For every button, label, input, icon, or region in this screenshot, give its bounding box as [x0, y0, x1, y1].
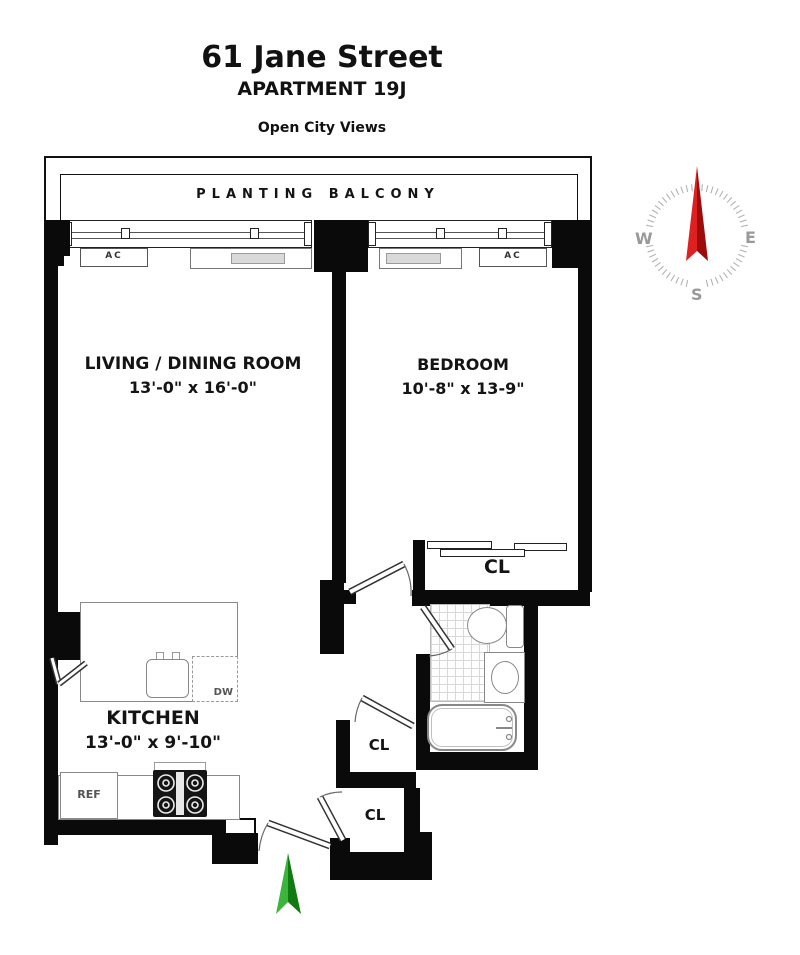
bedroom-dims: 10'-8" x 13-9"	[383, 379, 543, 399]
living-room-dims: 13'-0" x 16'-0"	[63, 378, 323, 398]
closet-hall-label: CL	[354, 736, 404, 755]
ac-label: AC	[480, 251, 546, 261]
wall-window-pier	[314, 220, 368, 272]
wall-living-bedroom	[332, 266, 346, 583]
window-mullion	[498, 228, 507, 239]
radiator-living	[190, 248, 312, 269]
entry-closet-door	[320, 792, 343, 840]
floor-plan: 61 Jane Street APARTMENT 19J Open City V…	[0, 0, 800, 955]
wall-entry-step	[212, 833, 258, 864]
living-room-name: LIVING / DINING ROOM	[63, 354, 323, 375]
sliding-door-bar	[427, 541, 492, 549]
refrigerator: REF	[60, 772, 118, 819]
window-post	[368, 222, 376, 246]
wall-hall-closet-bottom	[336, 772, 416, 788]
radiator-core	[231, 253, 285, 264]
entry-arrow	[276, 853, 301, 914]
window-glazing	[371, 232, 549, 239]
closet-bedroom-label: CL	[467, 556, 527, 580]
balcony-label: PLANTING BALCONY	[44, 187, 592, 203]
compass-needle	[686, 166, 697, 261]
living-window	[64, 220, 312, 248]
window-mullion	[436, 228, 445, 239]
dishwasher-label: DW	[214, 687, 233, 698]
sliding-door-bar	[440, 549, 525, 557]
window-mullion	[250, 228, 259, 239]
apartment-subtitle: APARTMENT 19J	[22, 78, 622, 100]
window-glazing	[67, 232, 309, 239]
wall-entry-closet-right	[404, 788, 420, 838]
bathroom-sink	[491, 661, 519, 694]
bedroom-door	[350, 564, 411, 596]
compass-west: W	[635, 229, 653, 248]
bedroom-name: BEDROOM	[383, 355, 543, 375]
entry-arrow-left	[276, 853, 288, 914]
wall-right	[578, 220, 592, 592]
wall-closet-left	[413, 540, 425, 594]
refrigerator-label: REF	[61, 788, 117, 801]
ac-label: AC	[81, 251, 147, 261]
window-post	[304, 222, 312, 246]
page-title: 61 Jane Street	[22, 40, 622, 75]
hall-closet-door	[355, 698, 413, 726]
window-mullion	[121, 228, 130, 239]
wall-living-lower-block	[320, 580, 344, 654]
bathtub	[427, 704, 517, 751]
tagline: Open City Views	[22, 120, 622, 136]
wall-left	[44, 222, 58, 845]
toilet-tank	[506, 605, 524, 648]
kitchen-name: KITCHEN	[73, 707, 233, 731]
wall-kitchen-column	[56, 612, 82, 660]
closet-entry-label: CL	[350, 806, 400, 825]
entry-arrow-right	[288, 853, 301, 914]
bedroom-window	[368, 220, 552, 248]
compass-ticks	[646, 184, 748, 287]
wall-bath-right	[524, 598, 538, 770]
wall-entry-stub	[330, 838, 350, 862]
dishwasher: DW	[192, 656, 238, 702]
stove-back-ledge	[154, 762, 206, 771]
kitchen-dims: 13'-0" x 9'-10"	[73, 733, 233, 754]
compass-east: E	[745, 228, 756, 247]
ac-unit-bedroom: AC	[479, 248, 547, 267]
compass-south: S	[691, 285, 703, 304]
entry-door	[259, 823, 330, 851]
wall-left-pier-step	[44, 250, 64, 266]
compass-needle-shade	[697, 166, 708, 261]
compass: W E S	[635, 166, 756, 304]
window-post	[544, 222, 552, 246]
toilet-bowl	[467, 607, 507, 644]
entry-recess	[226, 820, 254, 834]
radiator-core	[386, 253, 441, 264]
kitchen-sink	[146, 659, 189, 698]
ac-unit-living: AC	[80, 248, 148, 267]
radiator-bedroom	[379, 248, 462, 269]
wall-bath-bottom	[416, 752, 538, 770]
